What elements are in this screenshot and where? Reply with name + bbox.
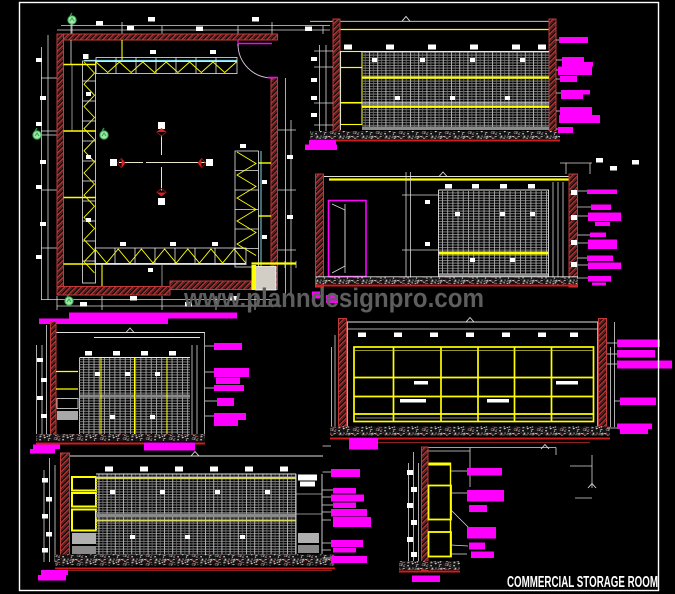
- svg-text:COMMERCIAL STORAGE ROOM: COMMERCIAL STORAGE ROOM: [507, 574, 658, 591]
- svg-text:www.planndesignpro.com: www.planndesignpro.com: [183, 283, 484, 313]
